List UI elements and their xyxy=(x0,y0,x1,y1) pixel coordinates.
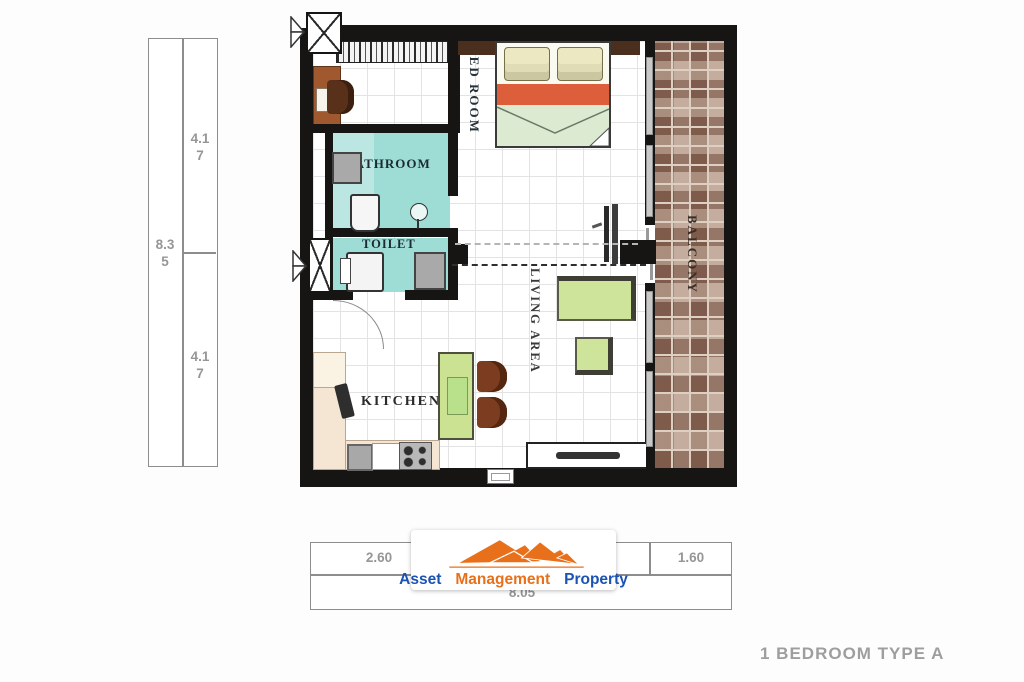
toilet-label: TOILET xyxy=(362,237,416,252)
plan-title: 1 BEDROOM TYPE A xyxy=(760,644,944,664)
bathroom-right-wall-upper xyxy=(448,124,458,196)
bathroom-sink xyxy=(332,152,362,184)
sofa xyxy=(557,276,636,321)
tv-unit xyxy=(612,204,618,264)
console-bar xyxy=(556,452,620,459)
toilet-wc-tank xyxy=(340,258,351,284)
living-boundary-dashed-dark xyxy=(452,264,646,266)
left-dimension-bar: 8.3 5 4.1 7 4.1 7 xyxy=(148,38,218,467)
bathroom-toilet-divider xyxy=(333,228,450,237)
bedroom-label: BED ROOM xyxy=(466,46,482,156)
toilet-wc xyxy=(346,252,384,292)
entry-door-jamb xyxy=(452,244,468,264)
mountain-logo-icon xyxy=(419,531,609,573)
shaft-box-entry xyxy=(308,238,332,293)
coffee-table xyxy=(575,337,613,375)
window xyxy=(646,371,653,447)
left-bar-horizontal-divider xyxy=(182,252,216,254)
window xyxy=(646,57,653,135)
bathroom-top-wall xyxy=(313,124,460,133)
kitchen-label: KITCHEN xyxy=(361,394,441,410)
window xyxy=(646,145,653,217)
bathroom-wc xyxy=(350,194,380,232)
stove-burners xyxy=(399,442,432,470)
toilet-shower-tray xyxy=(414,252,446,290)
balcony-label: BALCONY xyxy=(684,215,700,335)
living-area-label: LIVING AREA xyxy=(527,268,542,393)
bar-table-tray xyxy=(447,377,468,415)
dim-bottom-cell3: 1.60 xyxy=(649,550,733,567)
door-leaf-icon xyxy=(292,250,307,282)
door-threshold xyxy=(487,469,514,484)
dim-left-upper: 4.1 7 xyxy=(182,131,218,165)
bar-chair xyxy=(477,361,507,392)
shower-head-icon xyxy=(410,203,428,221)
living-boundary-dashed-light xyxy=(455,243,638,245)
desk-chair xyxy=(327,80,354,114)
dim-left-lower: 4.1 7 xyxy=(182,349,218,383)
kitchen-sink xyxy=(347,444,373,471)
bar-chair xyxy=(477,397,507,428)
bed xyxy=(495,41,611,148)
window xyxy=(646,291,653,363)
logo-word-property: Property xyxy=(564,571,628,589)
company-logo: Asset Management Property xyxy=(411,530,616,590)
logo-word-asset: Asset xyxy=(399,571,441,589)
logo-word-management: Management xyxy=(455,571,550,589)
bed-sheet-folds xyxy=(497,43,609,146)
tv-unit xyxy=(604,206,609,262)
shaft-box-top xyxy=(306,12,342,54)
door-leaf-icon xyxy=(290,16,305,48)
right-wall xyxy=(724,25,737,487)
kitchen-board xyxy=(372,443,400,470)
dim-left-total: 8.3 5 xyxy=(147,237,183,271)
wardrobe xyxy=(336,41,448,63)
toilet-bottom-wall-right xyxy=(405,290,458,300)
top-wall xyxy=(306,25,737,41)
floor-plan-canvas: 8.3 5 4.1 7 4.1 7 BALCONY xyxy=(0,0,1024,682)
shower-stem xyxy=(417,219,419,229)
kitchen-counter-left-upper xyxy=(314,353,345,388)
